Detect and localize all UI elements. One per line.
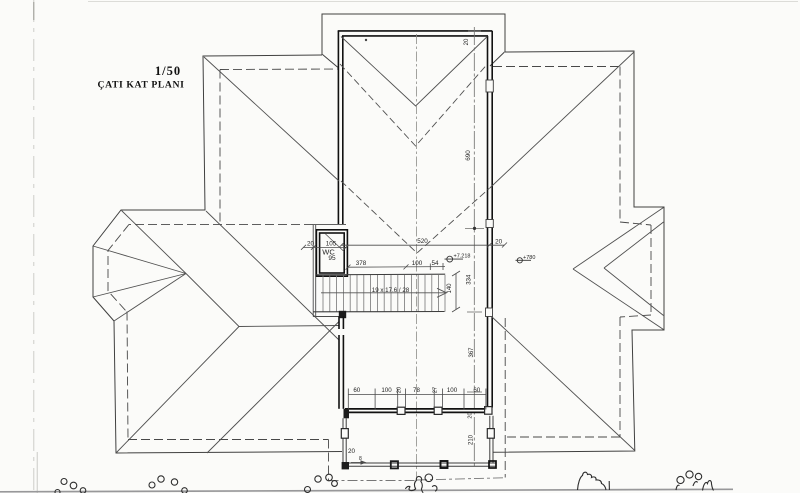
svg-text:140: 140: [447, 283, 453, 294]
svg-text:+7.218: +7.218: [454, 254, 471, 260]
svg-text:378: 378: [356, 260, 367, 267]
svg-text:54: 54: [431, 260, 439, 267]
svg-text:20: 20: [464, 38, 470, 45]
svg-text:690: 690: [465, 150, 472, 161]
svg-text:100: 100: [447, 387, 458, 394]
svg-text:1/50: 1/50: [155, 64, 181, 78]
svg-text:367: 367: [469, 347, 475, 358]
svg-text:19 x 17.6 / 28: 19 x 17.6 / 28: [372, 287, 410, 294]
svg-text:334: 334: [467, 274, 473, 285]
svg-text:20: 20: [307, 240, 315, 247]
svg-text:60: 60: [473, 387, 480, 394]
svg-text:+780: +780: [523, 255, 535, 261]
svg-text:60: 60: [353, 387, 360, 394]
svg-text:20: 20: [397, 387, 403, 393]
svg-text:100: 100: [412, 260, 423, 267]
svg-text:78: 78: [413, 387, 420, 394]
svg-text:20: 20: [495, 238, 503, 245]
svg-text:95: 95: [328, 255, 336, 262]
svg-text:20: 20: [348, 448, 356, 455]
svg-text:ÇATI KAT PLANI: ÇATI KAT PLANI: [98, 80, 185, 91]
svg-text:27: 27: [433, 387, 439, 393]
svg-text:210: 210: [468, 434, 474, 445]
svg-text:520: 520: [417, 238, 428, 245]
svg-text:20: 20: [468, 412, 474, 418]
svg-text:105: 105: [326, 241, 337, 248]
svg-text:100: 100: [381, 387, 392, 394]
